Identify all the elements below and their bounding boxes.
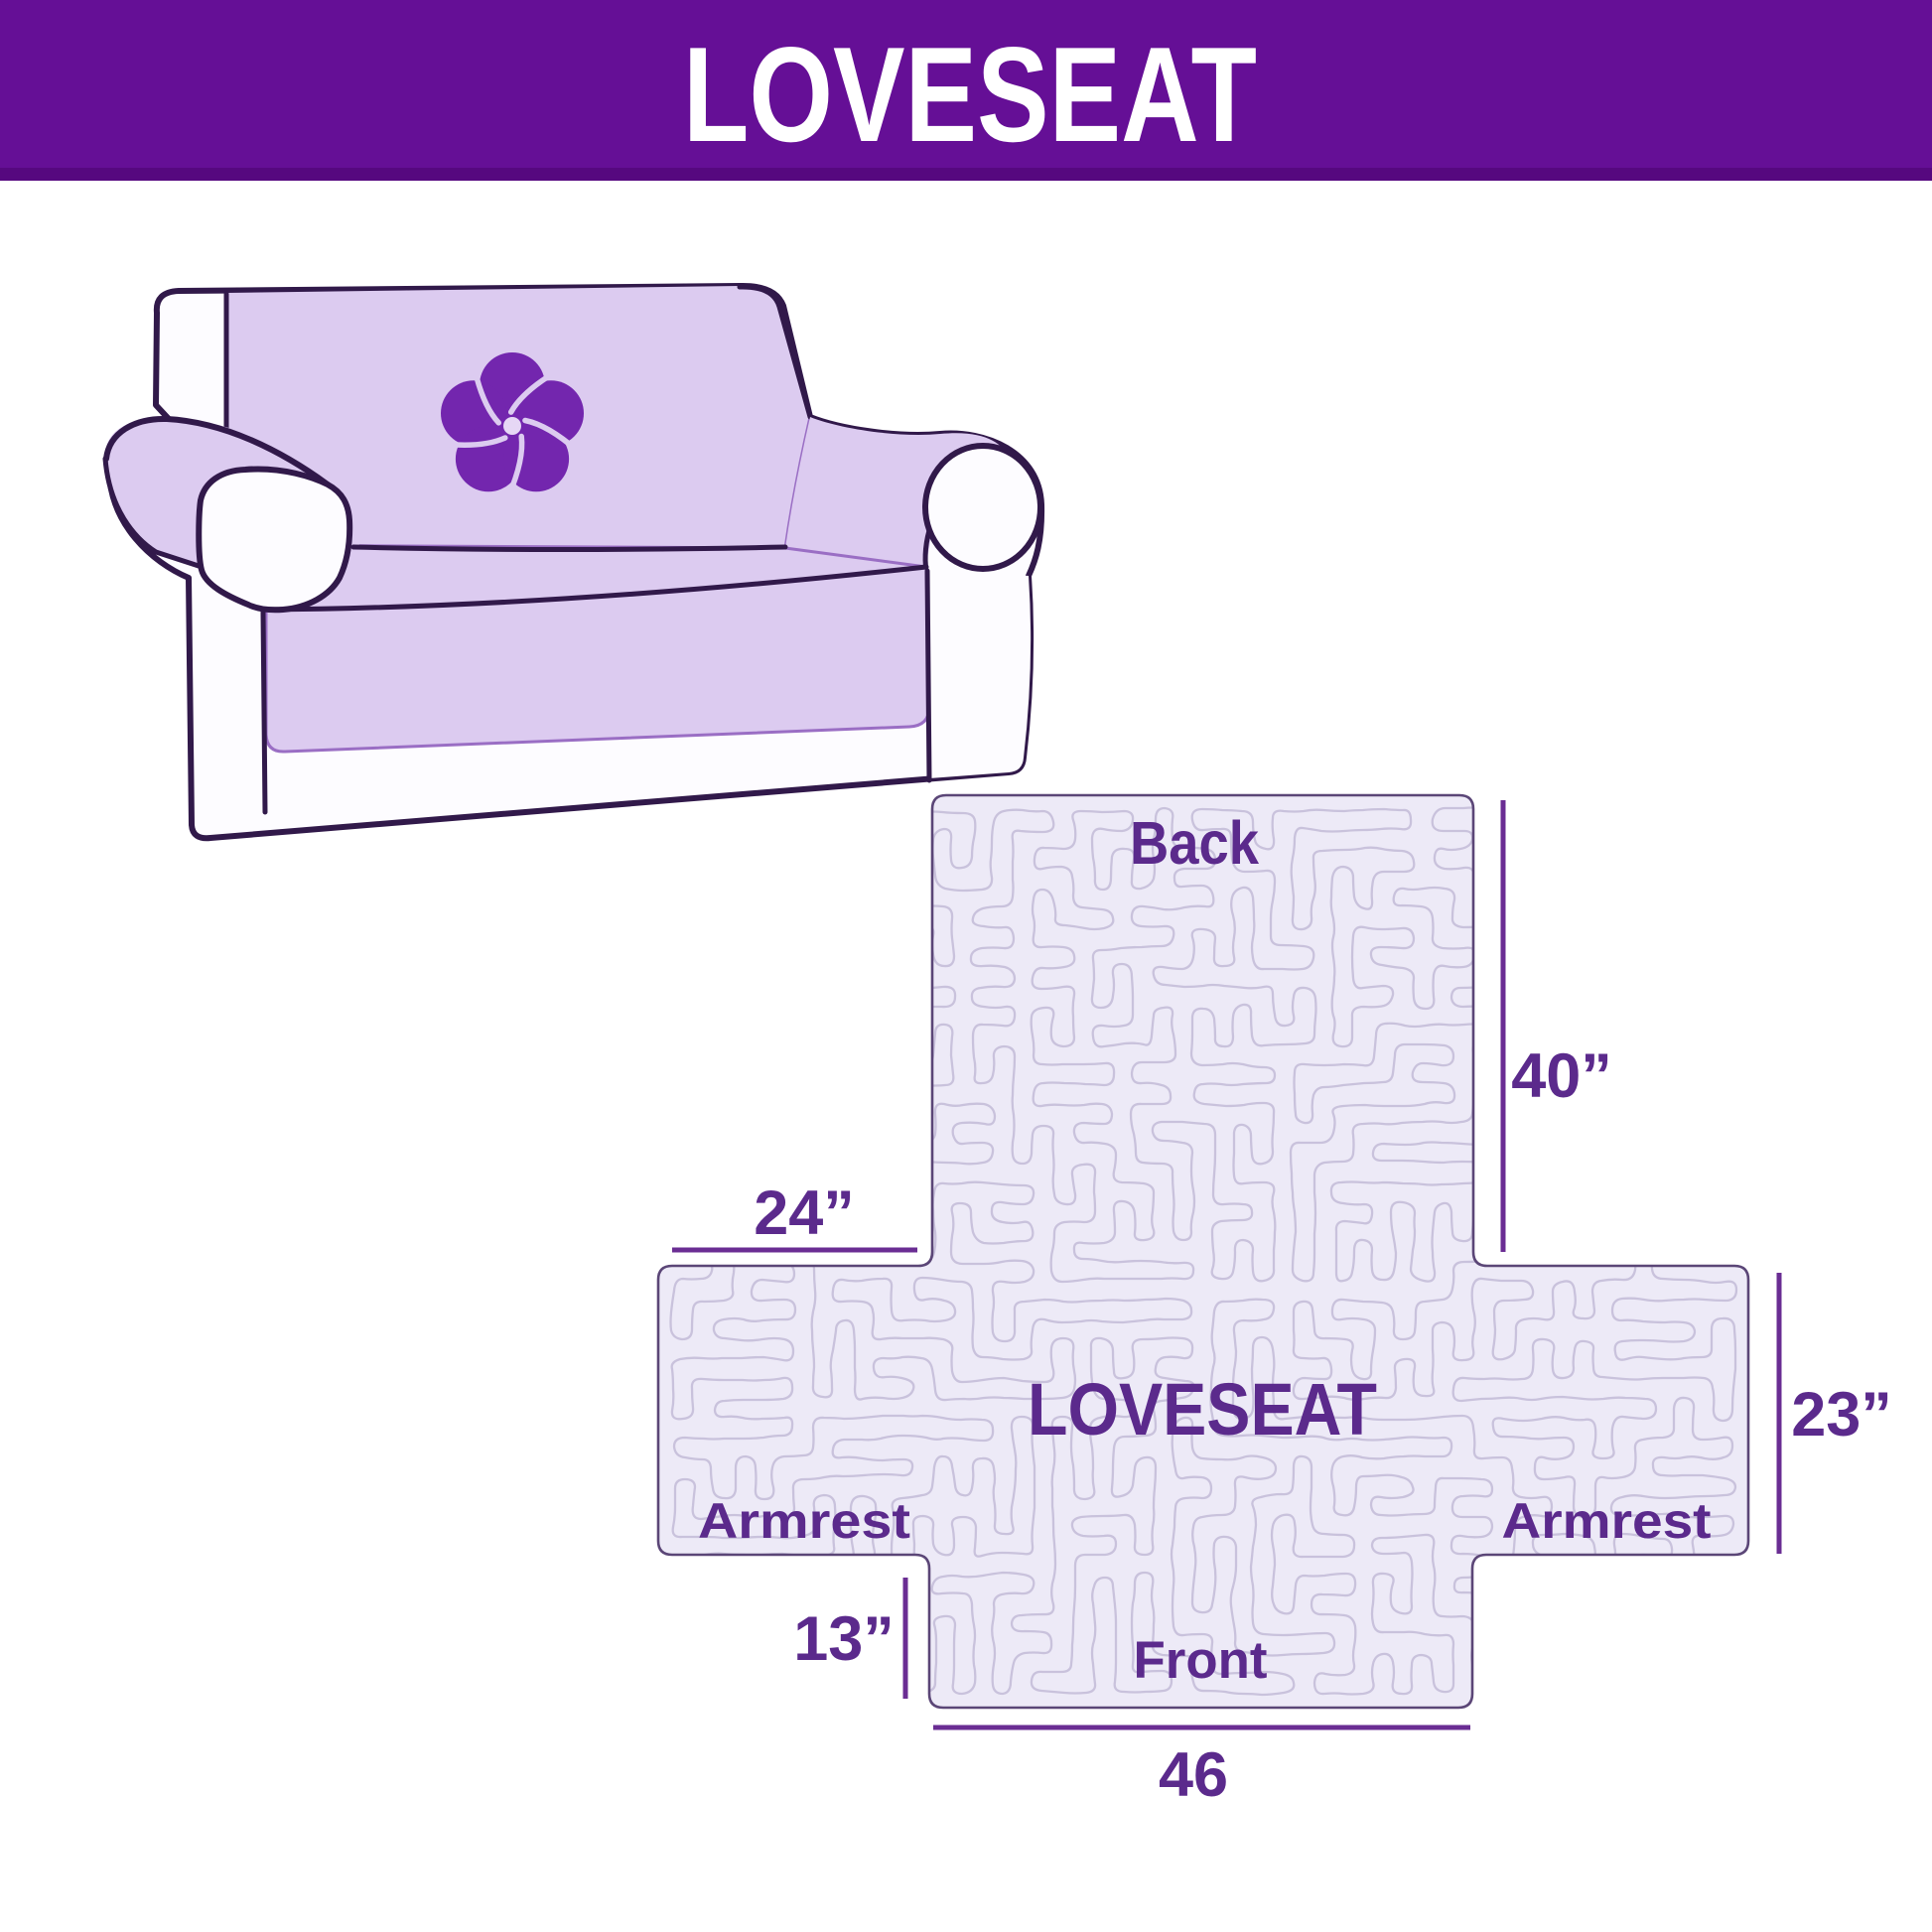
svg-text:Front: Front <box>1134 1631 1268 1690</box>
svg-text:LOVESEAT: LOVESEAT <box>1028 1368 1377 1450</box>
svg-text:Armrest: Armrest <box>698 1493 910 1549</box>
svg-text:Armrest: Armrest <box>1502 1493 1712 1549</box>
svg-text:23”: 23” <box>1791 1380 1892 1449</box>
svg-text:LOVESEAT: LOVESEAT <box>683 19 1257 170</box>
svg-text:40”: 40” <box>1511 1041 1612 1111</box>
svg-text:13”: 13” <box>793 1604 895 1674</box>
svg-text:46: 46 <box>1159 1740 1228 1810</box>
svg-text:Back: Back <box>1130 809 1259 877</box>
svg-text:24”: 24” <box>754 1178 855 1248</box>
